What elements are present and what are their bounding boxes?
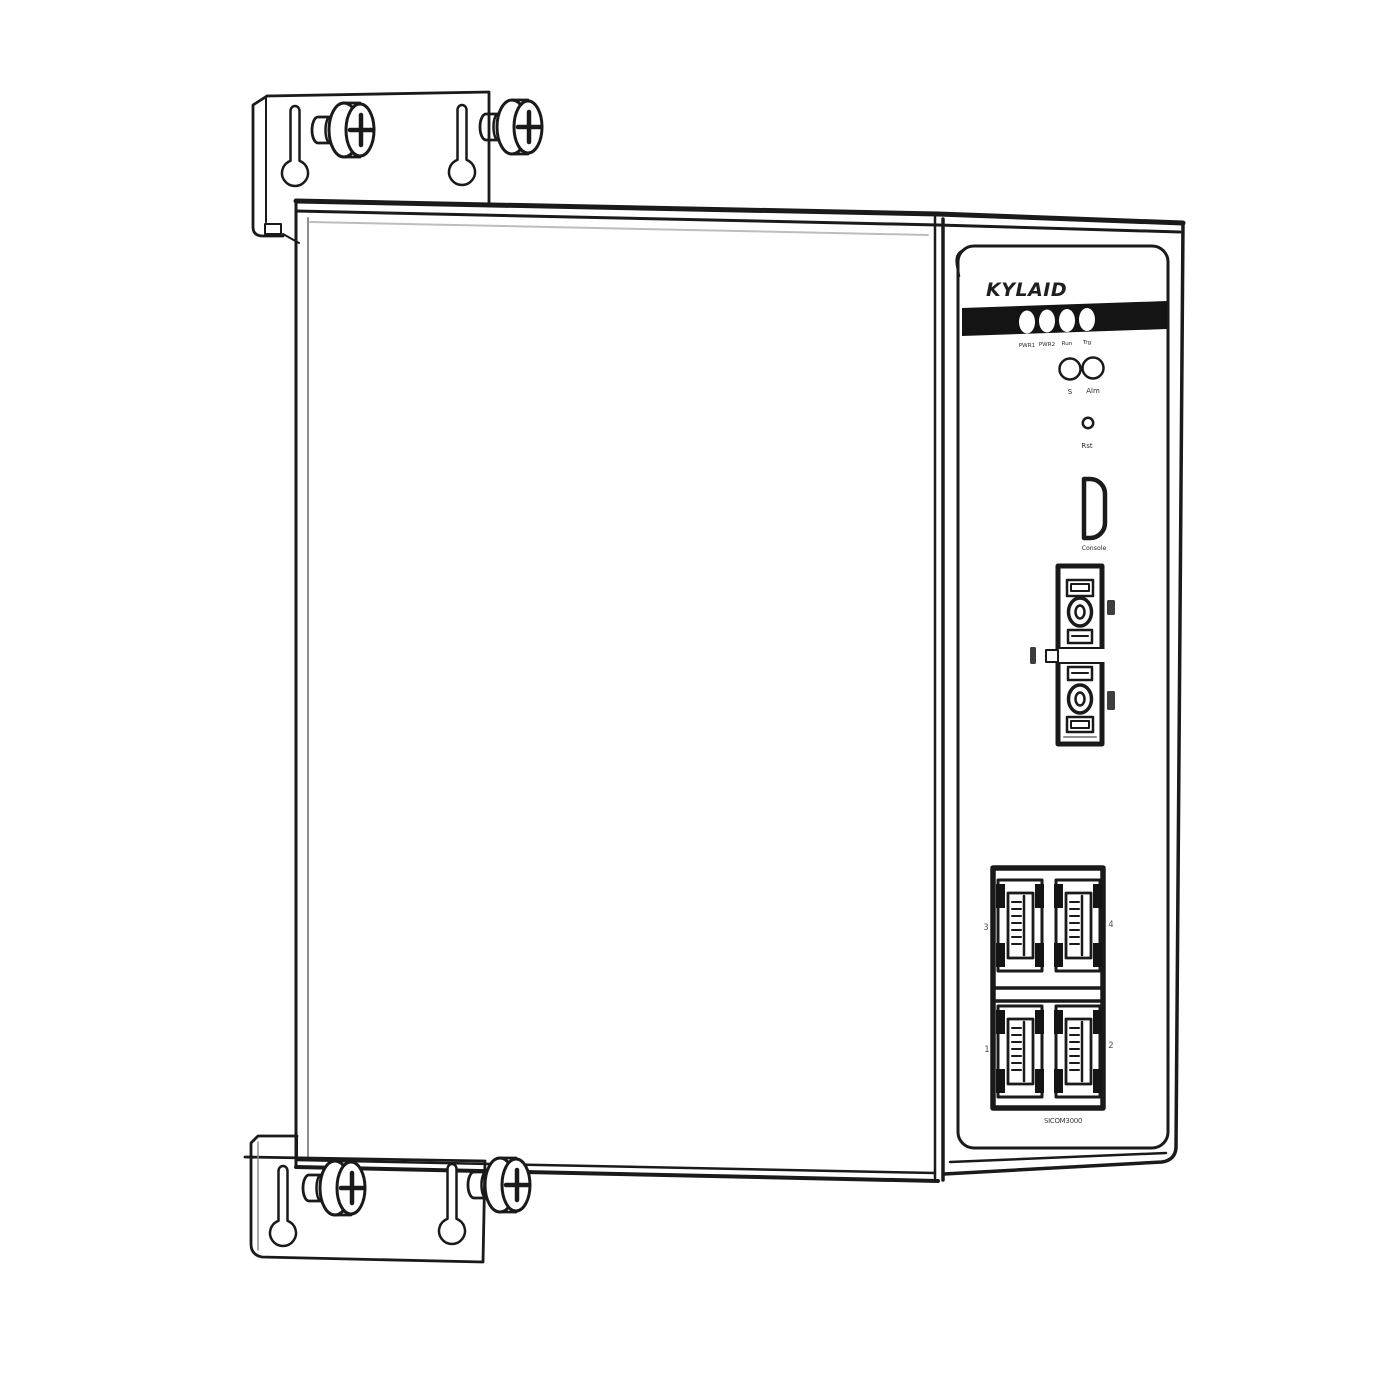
top-bracket-foot <box>265 224 281 234</box>
brand-logo: KYLAID <box>986 279 1067 301</box>
console-port-opening <box>1084 479 1105 538</box>
rj45-port-1 <box>996 1006 1044 1097</box>
rj45-port-3 <box>996 880 1044 971</box>
keyhole-slot-top-2 <box>449 105 475 185</box>
rj45-port-2 <box>1054 1006 1102 1097</box>
status-label-s: S <box>1068 388 1073 396</box>
model-label: SICOM3000 <box>1044 1117 1082 1125</box>
fiber-divider <box>1046 648 1105 663</box>
keyhole-slot-top-1 <box>282 106 308 186</box>
led-pwr2 <box>1039 310 1055 333</box>
switch-mounting-diagram: KYLAID PWR1 PWR2 Run Trg S Alm Rst <box>0 0 1400 1400</box>
rj45-port-block: 3 4 1 2 SICOM3000 <box>983 868 1113 1125</box>
illustration-canvas: KYLAID PWR1 PWR2 Run Trg S Alm Rst <box>0 0 1400 1400</box>
port-number-3: 3 <box>983 923 988 933</box>
fiber-marker-left <box>1030 647 1036 664</box>
fiber-marker-bottom <box>1107 691 1115 710</box>
led-label-run: Run <box>1062 341 1073 347</box>
status-indicator-alm <box>1083 358 1104 379</box>
led-trg <box>1079 308 1095 331</box>
status-label-alm: Alm <box>1086 387 1100 395</box>
status-indicator-s <box>1060 359 1081 380</box>
led-label-trg: Trg <box>1082 340 1092 346</box>
led-run <box>1059 309 1075 332</box>
led-label-pwr1: PWR1 <box>1019 343 1036 349</box>
bottom-mounting-bracket <box>245 1136 530 1262</box>
port-number-1: 1 <box>984 1045 989 1055</box>
reset-hole <box>1083 418 1093 428</box>
led-pwr1 <box>1019 311 1035 334</box>
keyhole-slot-bottom-1 <box>270 1166 296 1246</box>
keyhole-slot-bottom-2 <box>439 1164 465 1244</box>
mounting-screw-top-1 <box>312 103 374 157</box>
port-number-2: 2 <box>1108 1041 1113 1051</box>
led-label-pwr2: PWR2 <box>1039 342 1055 348</box>
front-panel: KYLAID PWR1 PWR2 Run Trg S Alm Rst <box>944 223 1183 1174</box>
reset-label: Rst <box>1081 442 1093 450</box>
fiber-connector-bottom <box>1067 667 1093 732</box>
mounting-screw-bottom-2 <box>468 1158 530 1212</box>
rj45-port-4 <box>1054 880 1102 971</box>
fiber-connector-top <box>1067 580 1093 643</box>
port-number-4: 4 <box>1108 920 1113 930</box>
console-label: Console <box>1082 545 1107 552</box>
fiber-marker-top <box>1107 600 1115 615</box>
